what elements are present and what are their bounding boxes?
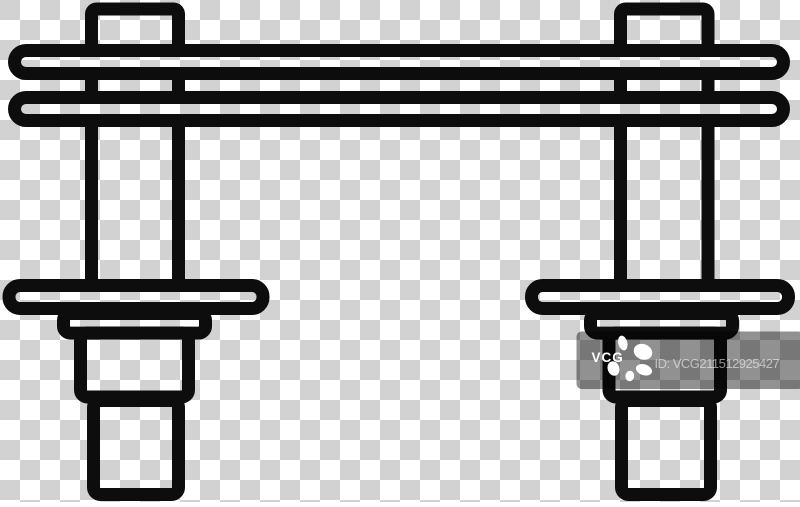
svg-text:ID: VCG211512925427: ID: VCG211512925427: [655, 356, 780, 371]
svg-text:VCG: VCG: [592, 350, 624, 365]
